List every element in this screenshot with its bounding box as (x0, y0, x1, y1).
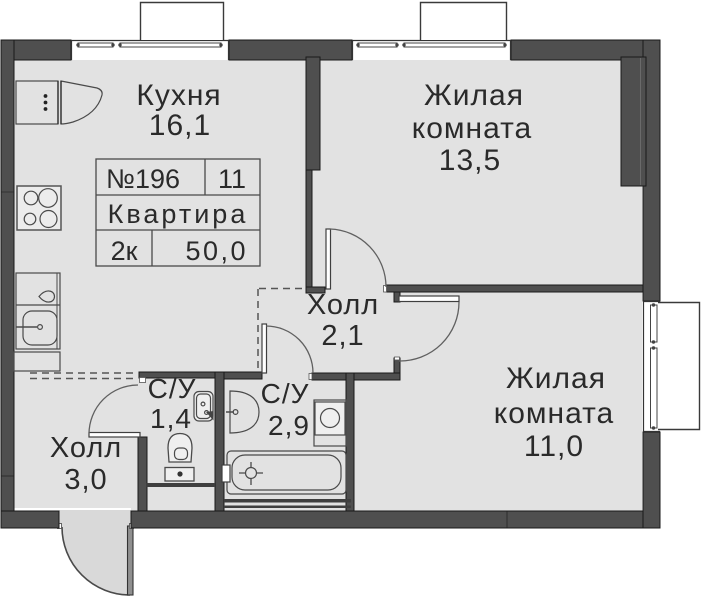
svg-text:Холл: Холл (50, 432, 122, 464)
svg-text:Холл: Холл (307, 289, 379, 321)
svg-text:комната: комната (494, 397, 614, 430)
svg-text:Жилая: Жилая (424, 79, 524, 112)
svg-text:2,1: 2,1 (321, 320, 364, 352)
svg-text:комната: комната (412, 112, 532, 145)
svg-text:1,4: 1,4 (150, 403, 192, 434)
svg-text:2,9: 2,9 (268, 410, 310, 441)
svg-text:11: 11 (218, 164, 246, 194)
svg-text:С/У: С/У (261, 378, 310, 409)
svg-text:13,5: 13,5 (439, 144, 501, 177)
svg-text:Кухня: Кухня (136, 79, 221, 112)
svg-text:3,0: 3,0 (64, 464, 107, 496)
svg-text:№196: №196 (106, 164, 180, 194)
svg-text:Квартира: Квартира (108, 199, 249, 229)
svg-text:С/У: С/У (148, 373, 197, 404)
svg-text:2к: 2к (111, 236, 138, 266)
svg-text:11,0: 11,0 (524, 430, 584, 463)
svg-text:16,1: 16,1 (149, 109, 211, 142)
svg-text:50,0: 50,0 (185, 236, 248, 266)
svg-text:Жилая: Жилая (506, 362, 606, 395)
